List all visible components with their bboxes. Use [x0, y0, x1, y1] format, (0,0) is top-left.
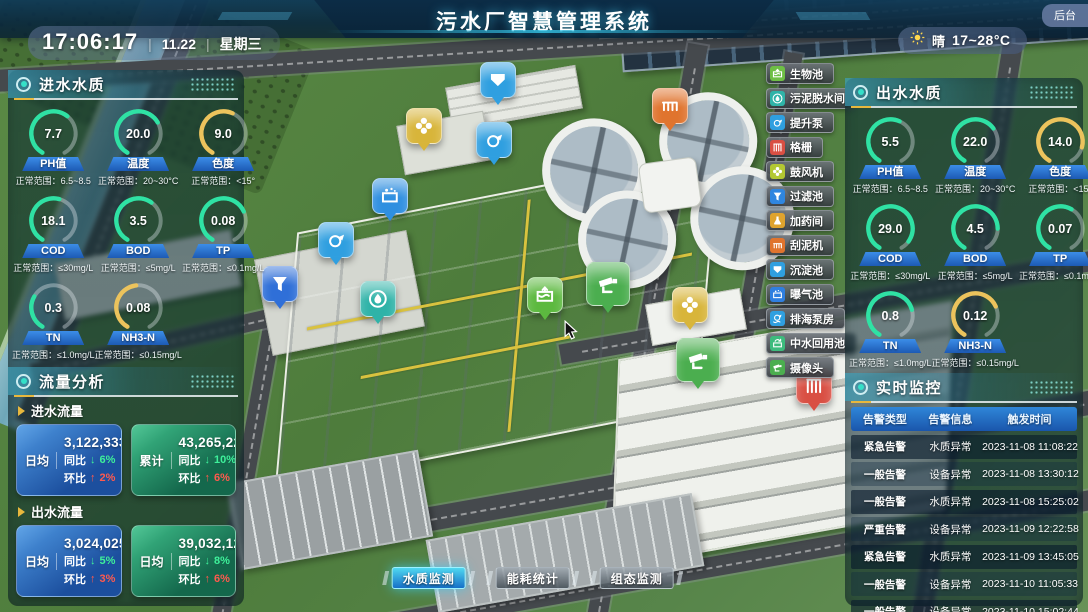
flow-section-title: 进水流量 — [8, 395, 244, 424]
flow-card-value: 39,032,128t — [179, 536, 236, 551]
gauge-value: 4.5 — [947, 200, 1004, 257]
sun-icon — [910, 30, 925, 50]
marker-pointer — [692, 381, 704, 389]
alert-type: 严重告警 — [851, 522, 919, 537]
gauge-COD: 29.0 COD 正常范围：≤30mg/L — [849, 200, 931, 282]
fan-icon — [770, 164, 785, 179]
dosing-icon — [770, 213, 785, 228]
arrow-up-icon: ↑ — [205, 573, 211, 585]
map-label-刮泥机[interactable]: 刮泥机 — [766, 235, 834, 256]
flow-card-value: 3,024,025t — [64, 536, 121, 551]
map-label-text: 格栅 — [790, 139, 812, 155]
gauge-value: 0.08 — [195, 192, 252, 249]
trend-key: 同比 — [64, 553, 86, 569]
weather-condition: 晴 — [932, 31, 945, 50]
gauge-TP: 0.08 TP 正常范围：≤0.1mg/L — [182, 192, 264, 274]
alert-type: 紧急告警 — [851, 439, 919, 454]
gauge-label: NH3-N — [107, 331, 169, 345]
gauge-value: 20.0 — [110, 105, 167, 162]
gauge-label: 色度 — [1029, 165, 1088, 179]
tab-能耗统计[interactable]: 能耗统计 — [496, 567, 570, 589]
flow-card-label: 累计 — [140, 452, 172, 469]
gauge-value: 7.7 — [25, 105, 82, 162]
gauge-label: COD — [859, 252, 921, 266]
map-label-格栅[interactable]: 格栅 — [766, 137, 823, 158]
marker-pointer — [808, 403, 820, 411]
gauge-label: PH值 — [859, 165, 921, 179]
panel-title: 出水水质 — [876, 82, 942, 103]
map-label-text: 生物池 — [790, 66, 823, 82]
gauge-label: TN — [859, 339, 921, 353]
marker-pointer — [372, 316, 384, 324]
gauge-label: BOD — [107, 244, 169, 258]
outlet-water-quality-panel: 出水水质 5.5 PH值 正常范围：6.5~8.5 22.0 温度 — [845, 78, 1083, 606]
alert-table: 告警类型告警信息触发时间 紧急告警 水质异常 2023-11-08 11:08:… — [845, 401, 1083, 612]
flow-card: 日均 3,122,333t 同比 ↓ 6% 环比 ↑ 2% — [16, 424, 122, 496]
alert-time: 2023-11-10 15:02:44 — [982, 606, 1077, 612]
map-label-曝气池[interactable]: 曝气池 — [766, 284, 834, 305]
alert-info: 设备异常 — [919, 467, 982, 482]
gauge-温度: 20.0 温度 正常范围：20~30°C — [94, 105, 181, 187]
gauge-value: 18.1 — [25, 192, 82, 249]
parking-lot — [226, 450, 433, 571]
gauge-label: BOD — [944, 252, 1006, 266]
alert-type: 一般告警 — [851, 467, 919, 482]
grate-icon — [770, 140, 785, 155]
gauge-NH3-N: 0.08 NH3-N 正常范围：≤0.15mg/L — [94, 279, 181, 361]
trend-key: 同比 — [179, 553, 201, 569]
gauge-normal-range: 正常范围：≤5mg/L — [94, 261, 181, 274]
gauge-normal-range: 正常范围：≤1.0mg/L — [849, 356, 931, 369]
trend-key: 环比 — [64, 470, 86, 486]
panel-title: 流量分析 — [39, 371, 105, 392]
trend-key: 环比 — [179, 470, 201, 486]
map-legend: 生物池 污泥脱水间 提升泵 格栅 鼓风机 过滤池 加药间 刮泥机 沉淀池 曝气池… — [766, 63, 856, 378]
tab-水质监测[interactable]: 水质监测 — [392, 567, 466, 589]
trend-value: 2% — [100, 472, 116, 484]
marker-pointer — [664, 123, 676, 131]
alert-col-header: 触发时间 — [982, 411, 1077, 427]
map-marker-aeration-icon[interactable] — [372, 178, 408, 214]
clock-widget: 17:06:17 | 11.22 | 星期三 — [28, 26, 280, 60]
panel-header: 进水水质 — [8, 70, 244, 98]
camera-icon — [770, 360, 785, 375]
map-marker-fan-icon[interactable] — [672, 287, 708, 323]
map-label-text: 提升泵 — [790, 115, 823, 131]
backstage-button[interactable]: 后台 — [1042, 4, 1088, 27]
arrow-down-icon: ↓ — [205, 454, 211, 466]
gauge-label: COD — [22, 244, 84, 258]
footer-tabs: 水质监测 能耗统计 组态监测 — [392, 567, 674, 589]
arrow-up-icon: ↑ — [205, 472, 211, 484]
map-label-text: 中水回用池 — [790, 335, 845, 351]
gauge-value: 22.0 — [947, 113, 1004, 170]
alert-row[interactable]: 紧急告警 水质异常 2023-11-08 11:08:22 — [851, 435, 1077, 459]
gauge-value: 0.8 — [862, 287, 919, 344]
gauge-value: 9.0 — [195, 105, 252, 162]
gauge-value: 0.3 — [25, 279, 82, 336]
bio-pool-icon — [770, 66, 785, 81]
dashboard: 生物池 污泥脱水间 提升泵 格栅 鼓风机 过滤池 加药间 刮泥机 沉淀池 曝气池… — [0, 0, 1088, 612]
map-label-中水回用池[interactable]: 中水回用池 — [766, 333, 856, 354]
gauge-label: NH3-N — [944, 339, 1006, 353]
arrow-down-icon: ↓ — [205, 555, 211, 567]
panel-orb-icon — [853, 85, 868, 100]
filter-icon — [770, 189, 785, 204]
gauge-normal-range: 正常范围：≤0.15mg/L — [94, 348, 181, 361]
map-marker-pump-icon[interactable] — [318, 222, 354, 258]
alert-row[interactable]: 紧急告警 水质异常 2023-11-09 13:45:05 — [851, 545, 1077, 569]
alert-info: 设备异常 — [919, 577, 982, 592]
alert-row[interactable]: 一般告警 设备异常 2023-11-10 11:05:33 — [851, 572, 1077, 596]
trend-value: 10% — [214, 454, 236, 466]
map-label-text: 加药间 — [790, 213, 823, 229]
alert-time: 2023-11-09 13:45:05 — [982, 551, 1077, 563]
gauge-normal-range: 正常范围：20~30°C — [94, 174, 181, 187]
gauge-normal-range: 正常范围：≤0.1mg/L — [182, 261, 264, 274]
marker-pointer — [384, 213, 396, 221]
gauge-label: 温度 — [107, 157, 169, 171]
alert-time: 2023-11-08 15:25:02 — [982, 496, 1077, 508]
map-label-沉淀池[interactable]: 沉淀池 — [766, 259, 834, 280]
alert-info: 设备异常 — [919, 604, 982, 612]
gauge-TN: 0.8 TN 正常范围：≤1.0mg/L — [849, 287, 931, 369]
map-label-text: 排海泵房 — [790, 311, 834, 327]
gauge-label: 温度 — [944, 165, 1006, 179]
map-label-排海泵房[interactable]: 排海泵房 — [766, 308, 845, 329]
arrow-up-icon: ↑ — [90, 472, 96, 484]
map-label-text: 刮泥机 — [790, 237, 823, 253]
gauge-value: 0.07 — [1032, 200, 1088, 257]
marker-pointer — [492, 97, 504, 105]
gauge-COD: 18.1 COD 正常范围：≤30mg/L — [12, 192, 94, 274]
alert-time: 2023-11-08 13:30:12 — [982, 468, 1077, 480]
flow-section: 进水流量 日均 3,122,333t 同比 ↓ 6% 环比 ↑ 2 — [8, 395, 244, 496]
map-label-text: 沉淀池 — [790, 262, 823, 278]
map-label-摄像头[interactable]: 摄像头 — [766, 357, 834, 378]
flow-card: 日均 39,032,128t 同比 ↓ 8% 环比 ↑ 6% — [131, 525, 237, 597]
gauge-NH3-N: 0.12 NH3-N 正常范围：≤0.15mg/L — [931, 287, 1018, 369]
map-marker-bio-pool-icon[interactable] — [527, 277, 563, 313]
tab-组态监测[interactable]: 组态监测 — [600, 567, 674, 589]
trend-key: 同比 — [64, 452, 86, 468]
map-label-加药间[interactable]: 加药间 — [766, 210, 834, 231]
trend-value: 6% — [214, 472, 230, 484]
marker-pointer — [684, 322, 696, 330]
map-marker-scraper-icon[interactable] — [652, 88, 688, 124]
trend-value: 5% — [100, 555, 116, 567]
trend-value: 3% — [100, 573, 116, 585]
alert-info: 水质异常 — [919, 439, 982, 454]
marker-pointer — [488, 157, 500, 165]
map-label-text: 污泥脱水间 — [790, 90, 845, 106]
marker-pointer — [418, 143, 430, 151]
clock-date: 11.22 — [162, 36, 196, 52]
map-label-提升泵[interactable]: 提升泵 — [766, 112, 834, 133]
scraper-icon — [770, 238, 785, 253]
flow-section-title: 出水流量 — [8, 496, 244, 525]
inlet-water-quality-panel: 进水水质 7.7 PH值 正常范围：6.5~8.5 20.0 温度 — [8, 70, 244, 606]
panel-title: 实时监控 — [876, 377, 942, 398]
gauge-色度: 9.0 色度 正常范围：<15° — [182, 105, 264, 187]
sea-pump-icon — [770, 311, 785, 326]
gauge-PH值: 7.7 PH值 正常范围：6.5~8.5 — [12, 105, 94, 187]
alert-type: 紧急告警 — [851, 549, 919, 564]
trend-key: 同比 — [179, 452, 201, 468]
gauge-label: TN — [22, 331, 84, 345]
alert-time: 2023-11-10 11:05:33 — [982, 578, 1077, 590]
alert-col-header: 告警类型 — [851, 411, 919, 427]
sediment-icon — [770, 262, 785, 277]
flow-card-label: 日均 — [25, 553, 57, 570]
alert-time: 2023-11-09 12:22:58 — [982, 523, 1077, 535]
weather-temp-range: 17~28°C — [952, 32, 1011, 48]
map-label-text: 鼓风机 — [790, 164, 823, 180]
panel-orb-icon — [16, 77, 31, 92]
gauge-value: 0.08 — [110, 279, 167, 336]
arrow-up-icon: ↑ — [90, 573, 96, 585]
marker-pointer — [539, 312, 551, 320]
alert-info: 水质异常 — [919, 494, 982, 509]
map-marker-pump-icon[interactable] — [476, 122, 512, 158]
map-marker-fan-icon[interactable] — [406, 108, 442, 144]
gauge-normal-range: 正常范围：<15° — [1019, 182, 1088, 195]
panel-orb-icon — [853, 380, 868, 395]
map-marker-dewater-icon[interactable] — [360, 281, 396, 317]
alert-row[interactable]: 一般告警 设备异常 2023-11-08 13:30:12 — [851, 462, 1077, 486]
marker-pointer — [330, 257, 342, 265]
alert-type: 一般告警 — [851, 494, 919, 509]
gauge-value: 5.5 — [862, 113, 919, 170]
map-marker-camera-icon[interactable] — [586, 262, 630, 306]
alert-type: 一般告警 — [851, 577, 919, 592]
gauge-BOD: 4.5 BOD 正常范围：≤5mg/L — [931, 200, 1018, 282]
map-label-过滤池[interactable]: 过滤池 — [766, 186, 834, 207]
trend-value: 6% — [214, 573, 230, 585]
gauge-normal-range: 正常范围：<15° — [182, 174, 264, 187]
alert-table-rows: 紧急告警 水质异常 2023-11-08 11:08:22 一般告警 设备异常 … — [851, 435, 1077, 612]
flow-section: 出水流量 日均 3,024,025t 同比 ↓ 5% 环比 ↑ 3 — [8, 496, 244, 597]
reuse-pool-icon — [770, 336, 785, 351]
arrow-down-icon: ↓ — [90, 555, 96, 567]
gauge-normal-range: 正常范围：6.5~8.5 — [12, 174, 94, 187]
arrow-down-icon: ↓ — [90, 454, 96, 466]
aeration-icon — [770, 287, 785, 302]
alert-type: 一般告警 — [851, 604, 919, 612]
alert-row[interactable]: 一般告警 水质异常 2023-11-08 15:25:02 — [851, 490, 1077, 514]
trend-value: 8% — [214, 555, 230, 567]
flow-card: 累计 43,265,225t 同比 ↓ 10% 环比 ↑ 6% — [131, 424, 237, 496]
panel-orb-icon — [16, 374, 31, 389]
map-label-text: 曝气池 — [790, 286, 823, 302]
outlet-gauges: 5.5 PH值 正常范围：6.5~8.5 22.0 温度 正常范围：20~30°… — [845, 106, 1083, 369]
clock-separator: | — [206, 36, 210, 52]
flow-sections: 进水流量 日均 3,122,333t 同比 ↓ 6% 环比 ↑ 2 — [8, 395, 244, 597]
flow-card-value: 43,265,225t — [179, 435, 236, 450]
trend-key: 环比 — [179, 571, 201, 587]
gauge-label: TP — [1029, 252, 1088, 266]
gauge-value: 0.12 — [947, 287, 1004, 344]
weather-widget: 晴 17~28°C — [898, 27, 1027, 54]
clock-weekday: 星期三 — [220, 34, 262, 54]
alert-row[interactable]: 严重告警 设备异常 2023-11-09 12:22:58 — [851, 517, 1077, 541]
flow-card-value: 3,122,333t — [64, 435, 121, 450]
flow-card: 日均 3,024,025t 同比 ↓ 5% 环比 ↑ 3% — [16, 525, 122, 597]
alert-info: 设备异常 — [919, 522, 982, 537]
marker-pointer — [274, 301, 286, 309]
map-label-text: 摄像头 — [790, 360, 823, 376]
gauge-PH值: 5.5 PH值 正常范围：6.5~8.5 — [849, 113, 931, 195]
map-label-鼓风机[interactable]: 鼓风机 — [766, 161, 834, 182]
map-marker-camera-icon[interactable] — [676, 338, 720, 382]
gauge-normal-range: 正常范围：≤0.15mg/L — [931, 356, 1018, 369]
gauge-BOD: 3.5 BOD 正常范围：≤5mg/L — [94, 192, 181, 274]
map-marker-filter-icon[interactable] — [262, 266, 298, 302]
pump-icon — [770, 115, 785, 130]
map-label-text: 过滤池 — [790, 188, 823, 204]
gauge-normal-range: 正常范围：6.5~8.5 — [849, 182, 931, 195]
trend-value: 6% — [100, 454, 116, 466]
map-marker-sediment-icon[interactable] — [480, 62, 516, 98]
map-label-污泥脱水间[interactable]: 污泥脱水间 — [766, 88, 856, 109]
trend-key: 环比 — [64, 571, 86, 587]
map-label-生物池[interactable]: 生物池 — [766, 63, 834, 84]
gauge-色度: 14.0 色度 正常范围：<15° — [1019, 113, 1088, 195]
gauge-normal-range: 正常范围：≤1.0mg/L — [12, 348, 94, 361]
alert-row[interactable]: 一般告警 设备异常 2023-11-10 15:02:44 — [851, 600, 1077, 612]
panel-header: 出水水质 — [845, 78, 1083, 106]
gauge-TN: 0.3 TN 正常范围：≤1.0mg/L — [12, 279, 94, 361]
clock-separator: | — [148, 36, 152, 52]
gauge-温度: 22.0 温度 正常范围：20~30°C — [931, 113, 1018, 195]
gauge-value: 14.0 — [1032, 113, 1088, 170]
panel-title: 进水水质 — [39, 74, 105, 95]
alert-table-header: 告警类型告警信息触发时间 — [851, 407, 1077, 431]
panel-header: 流量分析 — [8, 367, 244, 395]
gauge-normal-range: 正常范围：≤0.1mg/L — [1019, 269, 1088, 282]
triangle-bullet-icon — [18, 406, 25, 416]
gauge-label: 色度 — [192, 157, 254, 171]
gauge-normal-range: 正常范围：≤30mg/L — [12, 261, 94, 274]
alert-time: 2023-11-08 11:08:22 — [982, 441, 1077, 453]
gauge-normal-range: 正常范围：≤30mg/L — [849, 269, 931, 282]
alert-col-header: 告警信息 — [919, 411, 982, 427]
mouse-cursor — [563, 320, 579, 345]
gauge-normal-range: 正常范围：20~30°C — [931, 182, 1018, 195]
clock-time: 17:06:17 — [42, 29, 138, 55]
dewater-icon — [770, 91, 785, 106]
inlet-gauges: 7.7 PH值 正常范围：6.5~8.5 20.0 温度 正常范围：20~30°… — [8, 98, 244, 361]
gauge-label: PH值 — [22, 157, 84, 171]
alert-info: 水质异常 — [919, 549, 982, 564]
gauge-label: TP — [192, 244, 254, 258]
gauge-normal-range: 正常范围：≤5mg/L — [931, 269, 1018, 282]
triangle-bullet-icon — [18, 507, 25, 517]
flow-card-label: 日均 — [140, 553, 172, 570]
marker-pointer — [602, 305, 614, 313]
gauge-TP: 0.07 TP 正常范围：≤0.1mg/L — [1019, 200, 1088, 282]
gauge-value: 29.0 — [862, 200, 919, 257]
flow-card-label: 日均 — [25, 452, 57, 469]
panel-header: 实时监控 — [845, 373, 1083, 401]
gauge-value: 3.5 — [110, 192, 167, 249]
